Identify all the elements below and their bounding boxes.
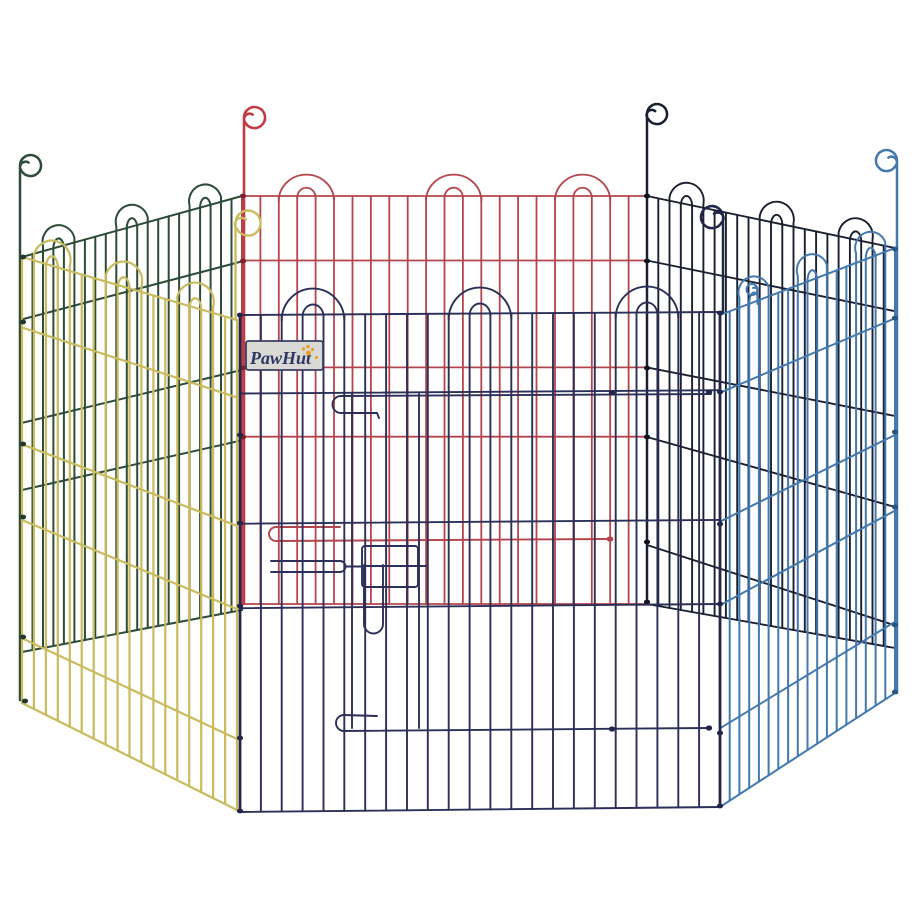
svg-text:PawHut: PawHut [249,348,312,368]
